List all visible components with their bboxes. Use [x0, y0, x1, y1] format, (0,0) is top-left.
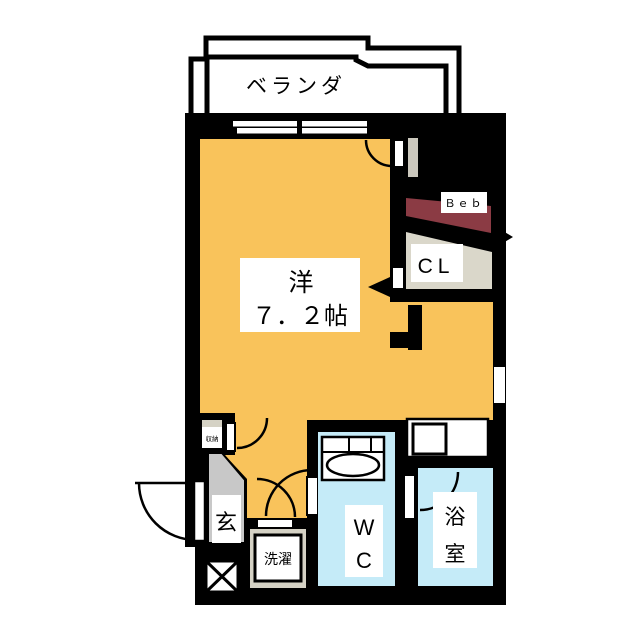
door-leaf — [394, 140, 404, 167]
bath-door-leaf — [404, 475, 415, 519]
wall-notch — [185, 547, 195, 605]
window-right — [494, 367, 505, 403]
entrance-label: 玄 — [215, 510, 237, 535]
room-label-group: 洋 ７．２帖 — [240, 258, 360, 332]
bed-label: Ｂｅｂ — [445, 198, 484, 210]
duct-panel — [408, 138, 418, 177]
balcony-area: ベランダ — [191, 38, 459, 116]
room-size-label: ７．２帖 — [252, 303, 348, 330]
wc-label-line1: W — [354, 515, 375, 540]
wc-label-line2: C — [356, 548, 372, 573]
storage-label: 収納 — [206, 434, 219, 443]
floorplan-page: ベランダ Ｂｅｂ CL 洋 ７．２帖 — [0, 0, 640, 640]
storage-box-top — [202, 420, 222, 427]
closet-label: CL — [418, 255, 455, 278]
window-center-tick — [297, 116, 302, 137]
wall-arrow-icon — [503, 231, 513, 243]
laundry-label: 洗濯 — [264, 551, 292, 567]
balcony-label: ベランダ — [246, 75, 346, 98]
closet-door-leaf — [392, 267, 404, 289]
counter-sink-icon — [413, 424, 446, 454]
kitchen-counter — [407, 419, 488, 457]
room-label: 洋 — [288, 269, 313, 297]
wc-door-leaf — [307, 477, 318, 515]
bath-label-line2: 室 — [445, 543, 466, 566]
storage-door-leaf — [226, 423, 235, 451]
laundry-unit: 洗濯 — [249, 528, 307, 589]
entrance-door — [135, 481, 205, 541]
bath-label-line1: 浴 — [445, 506, 466, 529]
sink-basin-icon — [327, 454, 379, 476]
entrance-door-leaf — [194, 481, 205, 541]
wc-room: W C — [318, 432, 395, 586]
shaft-x-icon — [206, 561, 238, 592]
floorplan-svg: ベランダ Ｂｅｂ CL 洋 ７．２帖 — [0, 0, 640, 640]
pillar-arm — [390, 332, 422, 348]
